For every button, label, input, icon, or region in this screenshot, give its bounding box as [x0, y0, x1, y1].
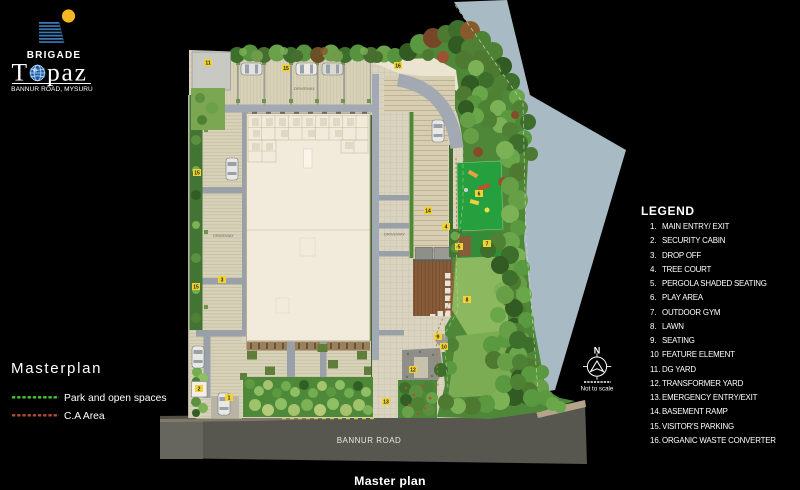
svg-text:BANNUR ROAD: BANNUR ROAD: [337, 436, 402, 445]
svg-text:15: 15: [193, 285, 199, 291]
svg-text:13: 13: [383, 400, 389, 406]
svg-text:7: 7: [486, 242, 489, 248]
svg-text:3: 3: [221, 278, 224, 284]
svg-text:10: 10: [441, 345, 447, 351]
svg-text:4: 4: [445, 225, 448, 231]
svg-text:12: 12: [410, 368, 416, 374]
svg-text:8: 8: [466, 298, 469, 304]
svg-text:DRIVEWAY: DRIVEWAY: [294, 86, 315, 91]
svg-text:1: 1: [228, 396, 231, 402]
svg-text:11: 11: [205, 61, 211, 67]
svg-text:14: 14: [425, 209, 431, 215]
svg-text:2: 2: [198, 387, 201, 393]
svg-text:5: 5: [458, 245, 461, 251]
svg-text:DRIVEWAY: DRIVEWAY: [384, 232, 405, 237]
svg-text:16: 16: [395, 64, 401, 70]
svg-text:6: 6: [478, 192, 481, 198]
svg-text:15: 15: [194, 171, 200, 177]
svg-text:15: 15: [283, 66, 289, 72]
svg-text:DRIVEWAY: DRIVEWAY: [213, 233, 234, 238]
svg-text:T: T: [12, 60, 28, 86]
svg-text:Not to scale: Not to scale: [581, 386, 614, 393]
svg-text:9: 9: [437, 335, 440, 341]
svg-text:paz: paz: [47, 60, 88, 86]
